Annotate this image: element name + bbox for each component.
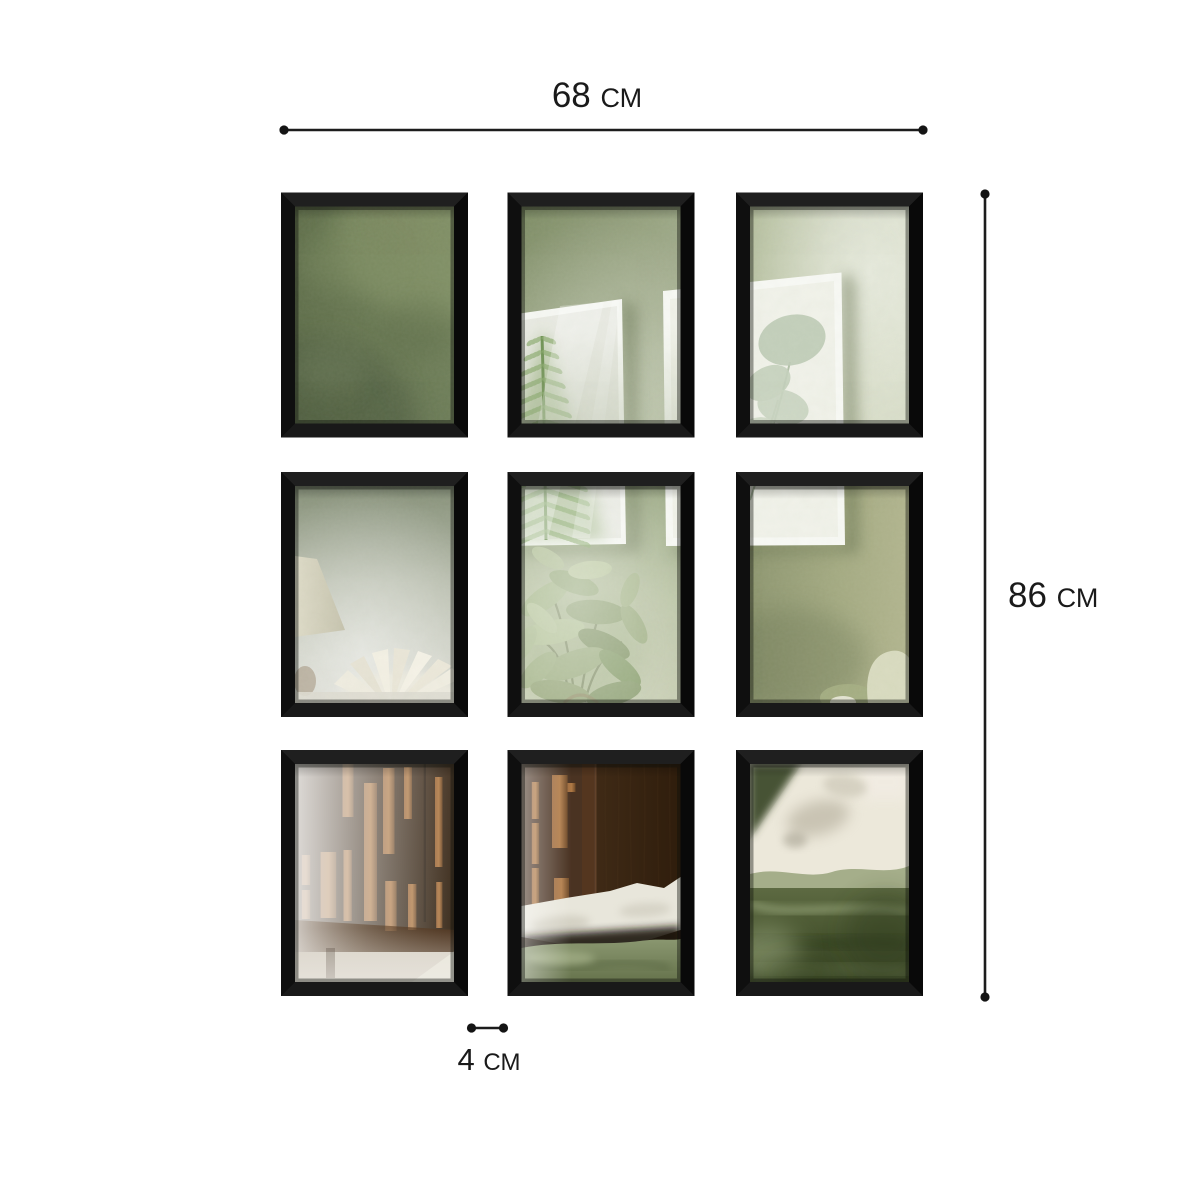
svg-text:4 СМ: 4 СМ [458,1042,521,1077]
svg-text:86 СМ: 86 СМ [1008,576,1098,615]
svg-text:68 СМ: 68 СМ [552,76,642,115]
